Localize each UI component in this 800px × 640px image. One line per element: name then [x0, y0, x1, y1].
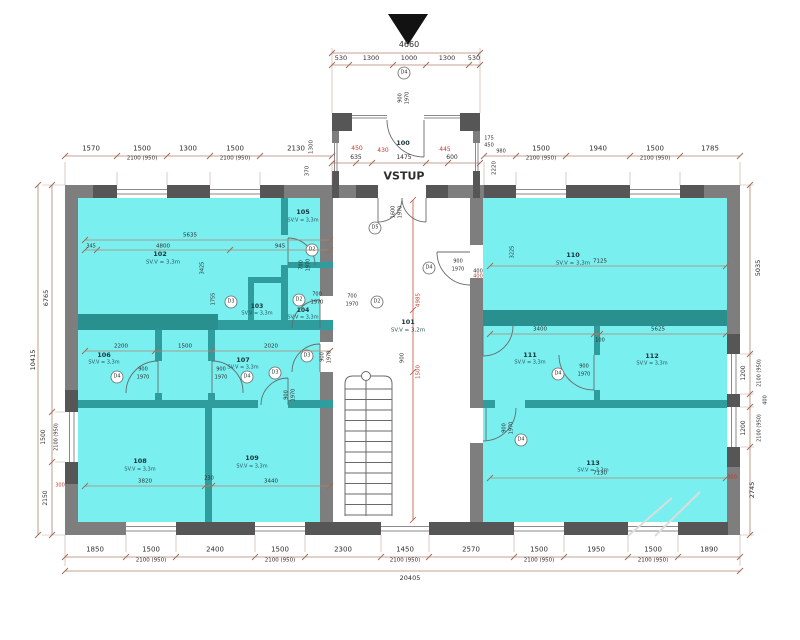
dim-label: 1200 [741, 420, 747, 435]
dim-sub-label: 2100 (950) [524, 558, 555, 564]
dim-sub-label: 2100 (950) [758, 359, 763, 387]
dim-label: 3820 [138, 479, 152, 485]
door-size: 900 [285, 390, 290, 400]
dim-label: 230 [204, 477, 214, 482]
dim-label: 1300 [363, 55, 380, 62]
dim-label: 1500 [646, 146, 664, 153]
room-number: 100 [396, 140, 410, 147]
dim-sub-label: 2100 (950) [265, 558, 296, 564]
dim-label: 945 [275, 244, 286, 250]
door-size: 900 [453, 260, 463, 265]
door-size: 700 [347, 295, 357, 300]
dim-label: 100 [595, 339, 605, 344]
door-size: 1970 [510, 422, 515, 435]
dim-label: 1500 [41, 429, 47, 444]
room-height: SV.V = 3,3m [236, 465, 267, 470]
staircase [345, 372, 392, 517]
dim-label: 530 [468, 55, 480, 62]
door-ref: D4 [554, 372, 561, 377]
room-number: 109 [245, 455, 259, 462]
dim-label: 1500 [178, 344, 192, 350]
dim-label: 1850 [86, 547, 104, 554]
door-ref: D3 [227, 300, 234, 305]
dim-label: 2150 [43, 490, 49, 505]
dim-label: 1500 [644, 547, 662, 554]
dim-sub-label: 2100 (950) [127, 156, 158, 162]
room-height: SV.V = 3,3m [88, 361, 119, 366]
door-ref: D2 [373, 300, 380, 305]
room-number: 113 [586, 460, 600, 467]
dim-label: 7125 [593, 259, 607, 265]
dim-label: 1940 [589, 146, 607, 153]
room-number: 105 [296, 209, 310, 216]
dim-label: 1300 [179, 146, 197, 153]
hall-dim-red [410, 197, 416, 523]
dim-label: 1300 [309, 140, 315, 154]
dim-label: 5625 [651, 327, 665, 333]
dim-label: 1000 [401, 55, 418, 62]
door-ref: D4 [400, 71, 407, 76]
dim-label: 1500 [530, 547, 548, 554]
door-ref: D4 [243, 375, 250, 380]
dim-label: 5035 [755, 260, 762, 277]
dim-label: 1500 [142, 547, 160, 554]
door-size: 1970 [406, 92, 411, 105]
dim-label: 10415 [30, 350, 37, 371]
room-height: SV.V = 3,2m [391, 328, 425, 334]
door-ref: D4 [517, 438, 524, 443]
red-dim: 450 [351, 146, 362, 152]
room-height: SV.V = 3,3m [556, 261, 590, 267]
dim-label: 7130 [593, 471, 607, 477]
dim-label: 1450 [396, 547, 414, 554]
room-height: SV.V = 3,3m [146, 260, 180, 266]
dim-label: 400 [764, 395, 769, 405]
room-height: SV.V = 3,3m [227, 366, 258, 371]
door-size: 1970 [578, 373, 591, 378]
dim-label: 900 [400, 353, 406, 364]
dim-label: 370 [305, 166, 311, 177]
door-size: 900 [138, 368, 148, 373]
dim-sub-label: 2100 (950) [758, 414, 763, 442]
room-height: SV.V = 3,3m [287, 316, 318, 321]
dim-label: 1500 [416, 365, 422, 379]
room-height: SV.V = 3,3m [636, 362, 667, 367]
dim-label: 1500 [532, 146, 550, 153]
door-size: 1970 [328, 351, 333, 364]
dim-label: 400 [473, 270, 483, 275]
dim-label: 3425 [201, 262, 206, 275]
dim-label: 175 [484, 137, 494, 142]
door-size: 1970 [292, 389, 297, 402]
room-height: SV.V = 3,3m [514, 361, 545, 366]
floor-plan-page: 4660 530 1300 1000 1300 530 D4 900 1970 … [0, 0, 800, 640]
entrance-label: VSTUP [384, 171, 425, 182]
dim-label: 450 [484, 144, 494, 149]
room-number: 112 [645, 353, 659, 360]
red-dim: 400 [473, 275, 483, 280]
dim-label: 600 [446, 155, 457, 161]
door-size: 900 [399, 93, 404, 103]
dim-label: 1500 [271, 547, 289, 554]
dim-label: 4985 [416, 293, 422, 307]
door-size: 1970 [399, 206, 404, 219]
dim-label: 530 [335, 55, 347, 62]
room-height: SV.V = 3,3m [241, 312, 272, 317]
door-size: 1970 [137, 376, 150, 381]
door-size: 900 [216, 368, 226, 373]
door-ref: D2 [308, 248, 315, 253]
dim-label: 3440 [264, 479, 278, 485]
red-dim: 430 [377, 148, 388, 154]
room-number: 110 [566, 252, 580, 259]
dim-label: 2745 [749, 482, 756, 499]
dim-label: 1200 [741, 365, 747, 380]
dim-sub-label: 2100 (950) [640, 156, 671, 162]
red-dim: 300 [727, 476, 737, 481]
dim-label: 4660 [399, 41, 419, 49]
dim-label: 2200 [114, 344, 128, 350]
door-size: 700 [300, 260, 305, 270]
door-size: 900 [503, 423, 508, 433]
dim-label: 4800 [156, 244, 170, 250]
red-dim: 445 [439, 147, 450, 153]
dim-sub-label: 2100 (950) [220, 156, 251, 162]
dim-sub-label: 2100 (950) [55, 423, 60, 451]
dim-label: 2300 [334, 547, 352, 554]
room-number: 106 [97, 352, 111, 359]
dim-label: 635 [350, 155, 361, 161]
room-number: 102 [153, 251, 167, 258]
dim-label: 1570 [82, 146, 100, 153]
door-size: 1970 [346, 303, 359, 308]
red-dim: 300 [55, 484, 65, 489]
dim-label: 1890 [700, 547, 718, 554]
dim-label: 3400 [533, 327, 547, 333]
door-ref: D5 [371, 226, 378, 231]
dim-label: 1500 [133, 146, 151, 153]
door-size: 1970 [307, 259, 312, 272]
door-size: 1970 [311, 301, 324, 306]
room-number: 104 [297, 308, 310, 314]
dim-label: 1785 [701, 146, 719, 153]
door-ref: D3 [303, 354, 310, 359]
room-number: 107 [236, 357, 250, 364]
dim-label: 2020 [264, 344, 278, 350]
door-size: 700 [312, 293, 322, 298]
door-size: 900 [579, 365, 589, 370]
dim-label: 2400 [206, 547, 224, 554]
door-size: 1970 [452, 268, 465, 273]
dim-sub-label: 2100 (950) [526, 156, 557, 162]
door-size: 1970 [215, 376, 228, 381]
dim-label: 3225 [511, 246, 516, 259]
dim-label: 1475 [396, 155, 411, 161]
door-ref: D2 [295, 298, 302, 303]
dim-sub-label: 2100 (950) [638, 558, 669, 564]
dim-label: 1755 [212, 293, 217, 306]
room-height: SV.V = 3,3m [124, 468, 155, 473]
total-dim: 20405 [400, 575, 421, 582]
room-number: 103 [251, 304, 264, 310]
dim-label: 6765 [43, 290, 50, 307]
dim-sub-label: 2100 (950) [390, 558, 421, 564]
dim-label: 1500 [226, 146, 244, 153]
room-number: 111 [523, 352, 537, 359]
dim-label: 2570 [462, 547, 480, 554]
door-ref: D4 [425, 266, 432, 271]
dim-label: 2130 [287, 146, 305, 153]
door-ref: D3 [271, 371, 278, 376]
dim-label: 980 [496, 150, 506, 155]
dim-label: 1300 [439, 55, 456, 62]
door-ref: D4 [113, 375, 120, 380]
dim-label: 1950 [587, 547, 605, 554]
dim-label: 2220 [492, 161, 498, 175]
room-height: SV.V = 3,3m [287, 219, 318, 224]
room-number: 108 [133, 458, 147, 465]
dim-label: 5635 [183, 233, 197, 239]
dim-label: 345 [86, 245, 96, 250]
dim-sub-label: 2100 (950) [136, 558, 167, 564]
room-number: 101 [401, 319, 415, 326]
door-size: 900 [321, 352, 326, 362]
door-size: 1600 [392, 206, 397, 219]
